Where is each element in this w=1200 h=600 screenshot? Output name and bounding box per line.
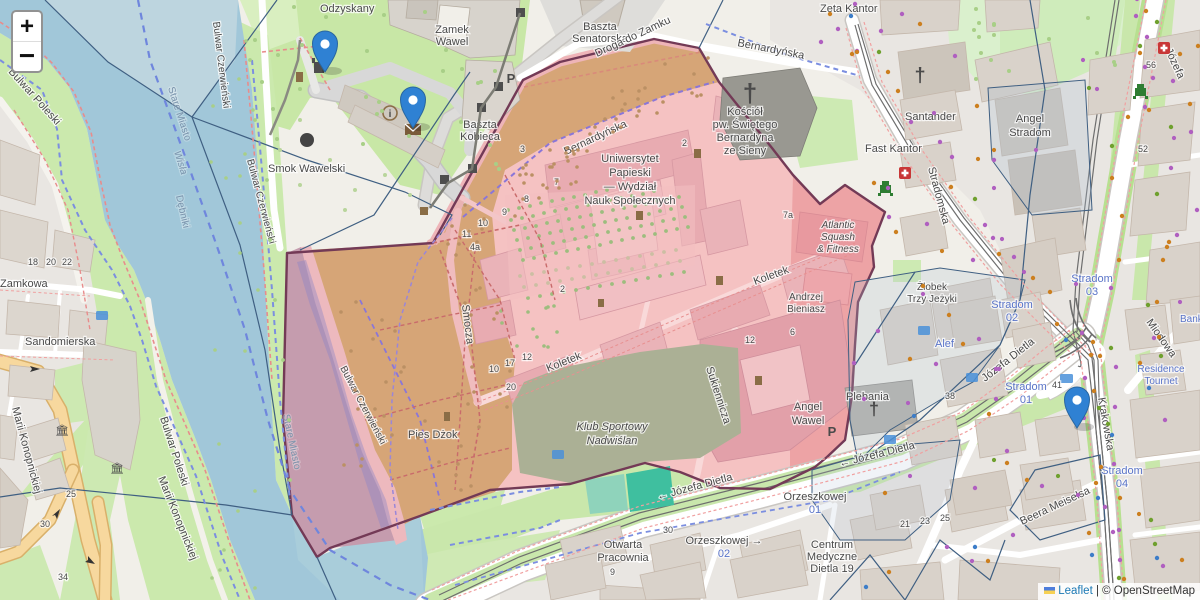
svg-text:Bernardyna: Bernardyna [717, 132, 775, 144]
svg-text:& Fitness: & Fitness [817, 244, 859, 255]
svg-text:Pracownia: Pracownia [597, 552, 649, 564]
svg-text:Stradom: Stradom [1101, 465, 1143, 477]
svg-text:Zamek: Zamek [435, 24, 469, 36]
svg-text:21: 21 [900, 519, 910, 529]
svg-text:Orzeszkowej →: Orzeszkowej → [685, 535, 762, 547]
svg-text:Pies Dżok: Pies Dżok [408, 429, 458, 441]
svg-text:Bank: Bank [1180, 314, 1200, 325]
svg-text:2: 2 [682, 138, 687, 148]
svg-text:†: † [869, 399, 879, 419]
svg-text:30: 30 [663, 525, 673, 535]
svg-text:🏛: 🏛 [55, 424, 69, 437]
svg-text:20: 20 [506, 382, 516, 392]
svg-text:03: 03 [1086, 286, 1098, 298]
svg-text:25: 25 [66, 489, 76, 499]
svg-text:Uniwersytet: Uniwersytet [601, 153, 658, 165]
svg-text:Nadwiślan: Nadwiślan [587, 435, 638, 447]
svg-text:P: P [507, 71, 516, 86]
svg-text:Klub Sportowy: Klub Sportowy [577, 421, 649, 433]
svg-text:Baszta: Baszta [583, 21, 618, 33]
svg-text:Baszta: Baszta [463, 119, 498, 131]
svg-text:Stradom: Stradom [1005, 381, 1047, 393]
svg-text:Atlantic: Atlantic [821, 220, 855, 231]
svg-text:Trzy Jeżyki: Trzy Jeżyki [907, 294, 957, 305]
svg-text:Centrum: Centrum [811, 539, 853, 551]
svg-text:52: 52 [1138, 144, 1148, 154]
svg-text:4a: 4a [470, 242, 480, 252]
svg-text:P: P [828, 424, 837, 439]
svg-text:02: 02 [1006, 312, 1018, 324]
svg-text:Stradom: Stradom [991, 299, 1033, 311]
svg-text:Andrzej: Andrzej [789, 292, 823, 303]
svg-text:Alef: Alef [935, 338, 955, 350]
svg-text:Wawel: Wawel [436, 36, 469, 48]
svg-text:23: 23 [920, 516, 930, 526]
svg-text:Bieniasz: Bieniasz [787, 304, 825, 315]
svg-text:Angel: Angel [794, 401, 822, 413]
svg-text:18: 18 [28, 257, 38, 267]
svg-text:25: 25 [940, 513, 950, 523]
svg-text:Fast Kantor: Fast Kantor [865, 143, 922, 155]
svg-text:i: i [389, 109, 392, 120]
svg-text:Kobieca: Kobieca [460, 131, 501, 143]
svg-text:†: † [914, 65, 925, 87]
svg-text:— Wydział: — Wydział [604, 181, 657, 193]
svg-text:04: 04 [1116, 478, 1128, 490]
svg-text:6: 6 [790, 327, 795, 337]
svg-text:34: 34 [58, 572, 68, 582]
svg-text:01: 01 [809, 504, 821, 516]
svg-text:9: 9 [502, 207, 507, 217]
svg-text:9: 9 [610, 567, 615, 577]
svg-text:🏛: 🏛 [110, 462, 124, 475]
svg-text:3: 3 [520, 144, 525, 154]
svg-text:10: 10 [489, 364, 499, 374]
svg-text:Medyczne: Medyczne [807, 551, 857, 563]
svg-text:Otwarta: Otwarta [604, 539, 643, 551]
svg-text:56: 56 [1146, 60, 1156, 70]
svg-text:Smok Wawelski: Smok Wawelski [268, 163, 345, 175]
svg-text:Plebania: Plebania [846, 391, 890, 403]
svg-text:Tournet: Tournet [1144, 376, 1178, 387]
svg-text:2: 2 [560, 284, 565, 294]
svg-text:7a: 7a [783, 210, 793, 220]
svg-text:Dietla 19: Dietla 19 [810, 563, 853, 575]
svg-text:Squash: Squash [821, 232, 855, 243]
svg-text:Orzeszkowej: Orzeszkowej [784, 491, 847, 503]
svg-text:17: 17 [505, 358, 515, 368]
svg-text:Odzyskany: Odzyskany [320, 3, 375, 15]
svg-text:30: 30 [40, 519, 50, 529]
svg-text:Nauk Społecznych: Nauk Społecznych [584, 195, 675, 207]
svg-text:01: 01 [1020, 394, 1032, 406]
svg-text:12: 12 [522, 352, 532, 362]
svg-text:†: † [743, 78, 757, 108]
svg-text:38: 38 [945, 391, 955, 401]
svg-text:02: 02 [718, 548, 730, 560]
svg-text:Stradom: Stradom [1009, 127, 1051, 139]
svg-text:pw. Świętego: pw. Świętego [713, 118, 778, 131]
svg-text:Wawel: Wawel [792, 415, 825, 427]
svg-text:Angel: Angel [1016, 113, 1044, 125]
svg-text:Papieski: Papieski [609, 167, 651, 179]
svg-text:20: 20 [46, 257, 56, 267]
svg-text:22: 22 [62, 257, 72, 267]
svg-text:Zamkowa: Zamkowa [0, 278, 49, 290]
svg-text:41: 41 [1052, 380, 1062, 390]
svg-text:12: 12 [745, 335, 755, 345]
svg-text:ze Sieny: ze Sieny [724, 145, 767, 157]
svg-text:Sandomierska: Sandomierska [25, 336, 96, 348]
svg-text:Residence: Residence [1137, 364, 1185, 375]
